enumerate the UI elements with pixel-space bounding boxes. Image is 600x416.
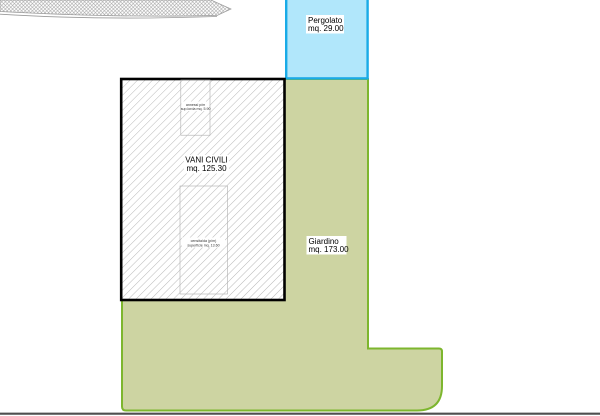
svg-text:mq. 29.00: mq. 29.00 xyxy=(308,24,344,33)
svg-text:mq. 173.00: mq. 173.00 xyxy=(309,245,350,254)
svg-text:sup.lorda mq. 5.90: sup.lorda mq. 5.90 xyxy=(181,107,211,111)
svg-text:superficie mq. 13.60: superficie mq. 13.60 xyxy=(187,244,219,248)
svg-text:censita/da (p/m): censita/da (p/m) xyxy=(191,239,217,243)
svg-text:annessi p/m: annessi p/m xyxy=(186,103,205,107)
svg-text:mq. 125.30: mq. 125.30 xyxy=(186,164,227,173)
